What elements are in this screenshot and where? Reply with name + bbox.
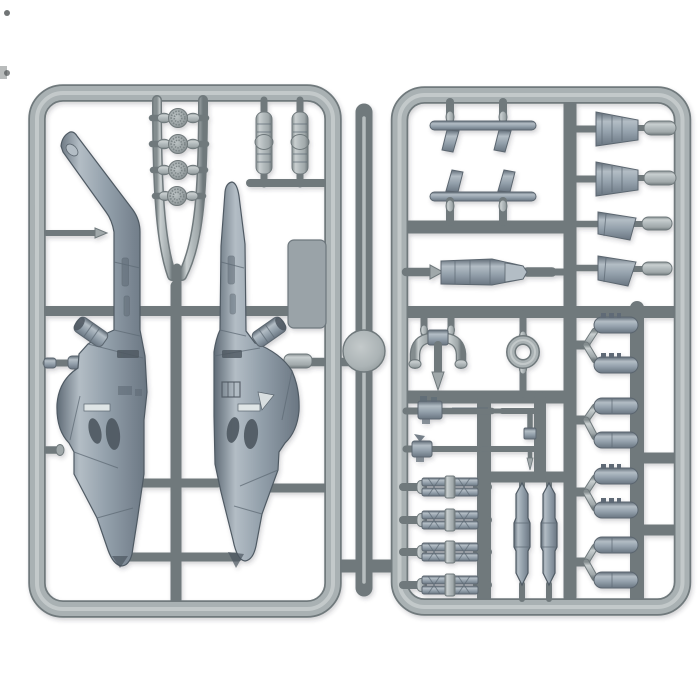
vent-detail	[117, 350, 139, 358]
fuselage-half-left	[44, 132, 147, 568]
stabilizer-panel	[288, 240, 326, 328]
rotor-hub-ladder	[152, 100, 206, 296]
injection-gate-disc	[343, 330, 385, 372]
fin-1	[575, 212, 672, 240]
sprue-photo	[0, 0, 700, 700]
missile-launcher-2	[403, 509, 488, 531]
exhaust-fairing-2	[575, 162, 676, 196]
rotor-hub-disc-4	[168, 187, 187, 206]
fuel-tank-1	[514, 477, 530, 599]
photo-blemish-1	[4, 10, 10, 16]
sprue-drawing	[0, 0, 700, 700]
skid-rail-1	[430, 102, 536, 152]
vent-detail	[222, 350, 242, 358]
fuselage-right-silhouette	[214, 182, 299, 561]
rotor-hub-disc-2	[169, 135, 188, 154]
engine-exhaust-right	[250, 315, 288, 349]
rocket-pod-4	[594, 432, 638, 448]
sight-ring	[511, 314, 535, 394]
missile-launcher-4	[403, 574, 488, 596]
skid-tab	[446, 170, 463, 192]
rocket-pod-8	[594, 572, 638, 588]
rocket-pod-7	[594, 537, 638, 553]
missile-launchers	[403, 476, 488, 596]
rotor-hub-disc-3	[169, 161, 188, 180]
chain-gun-2	[406, 434, 537, 462]
exhaust-yoke	[409, 313, 467, 390]
rotor-hub-disc-1	[169, 109, 188, 128]
skid-tab	[494, 130, 511, 152]
missile-launcher-3	[403, 541, 488, 563]
engine-pod-2	[291, 100, 309, 184]
fuselage-half-right	[214, 182, 299, 568]
missile-launcher-1	[403, 476, 488, 498]
skid-rail-2	[430, 170, 536, 222]
skid-tab	[442, 130, 459, 152]
fin-2	[575, 256, 672, 286]
light-slot-detail	[84, 404, 110, 411]
exhaust-fairing-1	[575, 112, 676, 146]
photo-blemish-2	[0, 66, 10, 79]
rocket-pod-3	[594, 398, 638, 414]
skid-tab	[498, 170, 515, 192]
rocket-pod-column	[570, 313, 638, 588]
center-runner	[334, 112, 400, 588]
fuel-tank-2	[541, 477, 557, 599]
fuselage-left-silhouette	[57, 132, 147, 566]
engine-pod-1	[255, 100, 273, 184]
cannon-pod	[406, 259, 564, 285]
